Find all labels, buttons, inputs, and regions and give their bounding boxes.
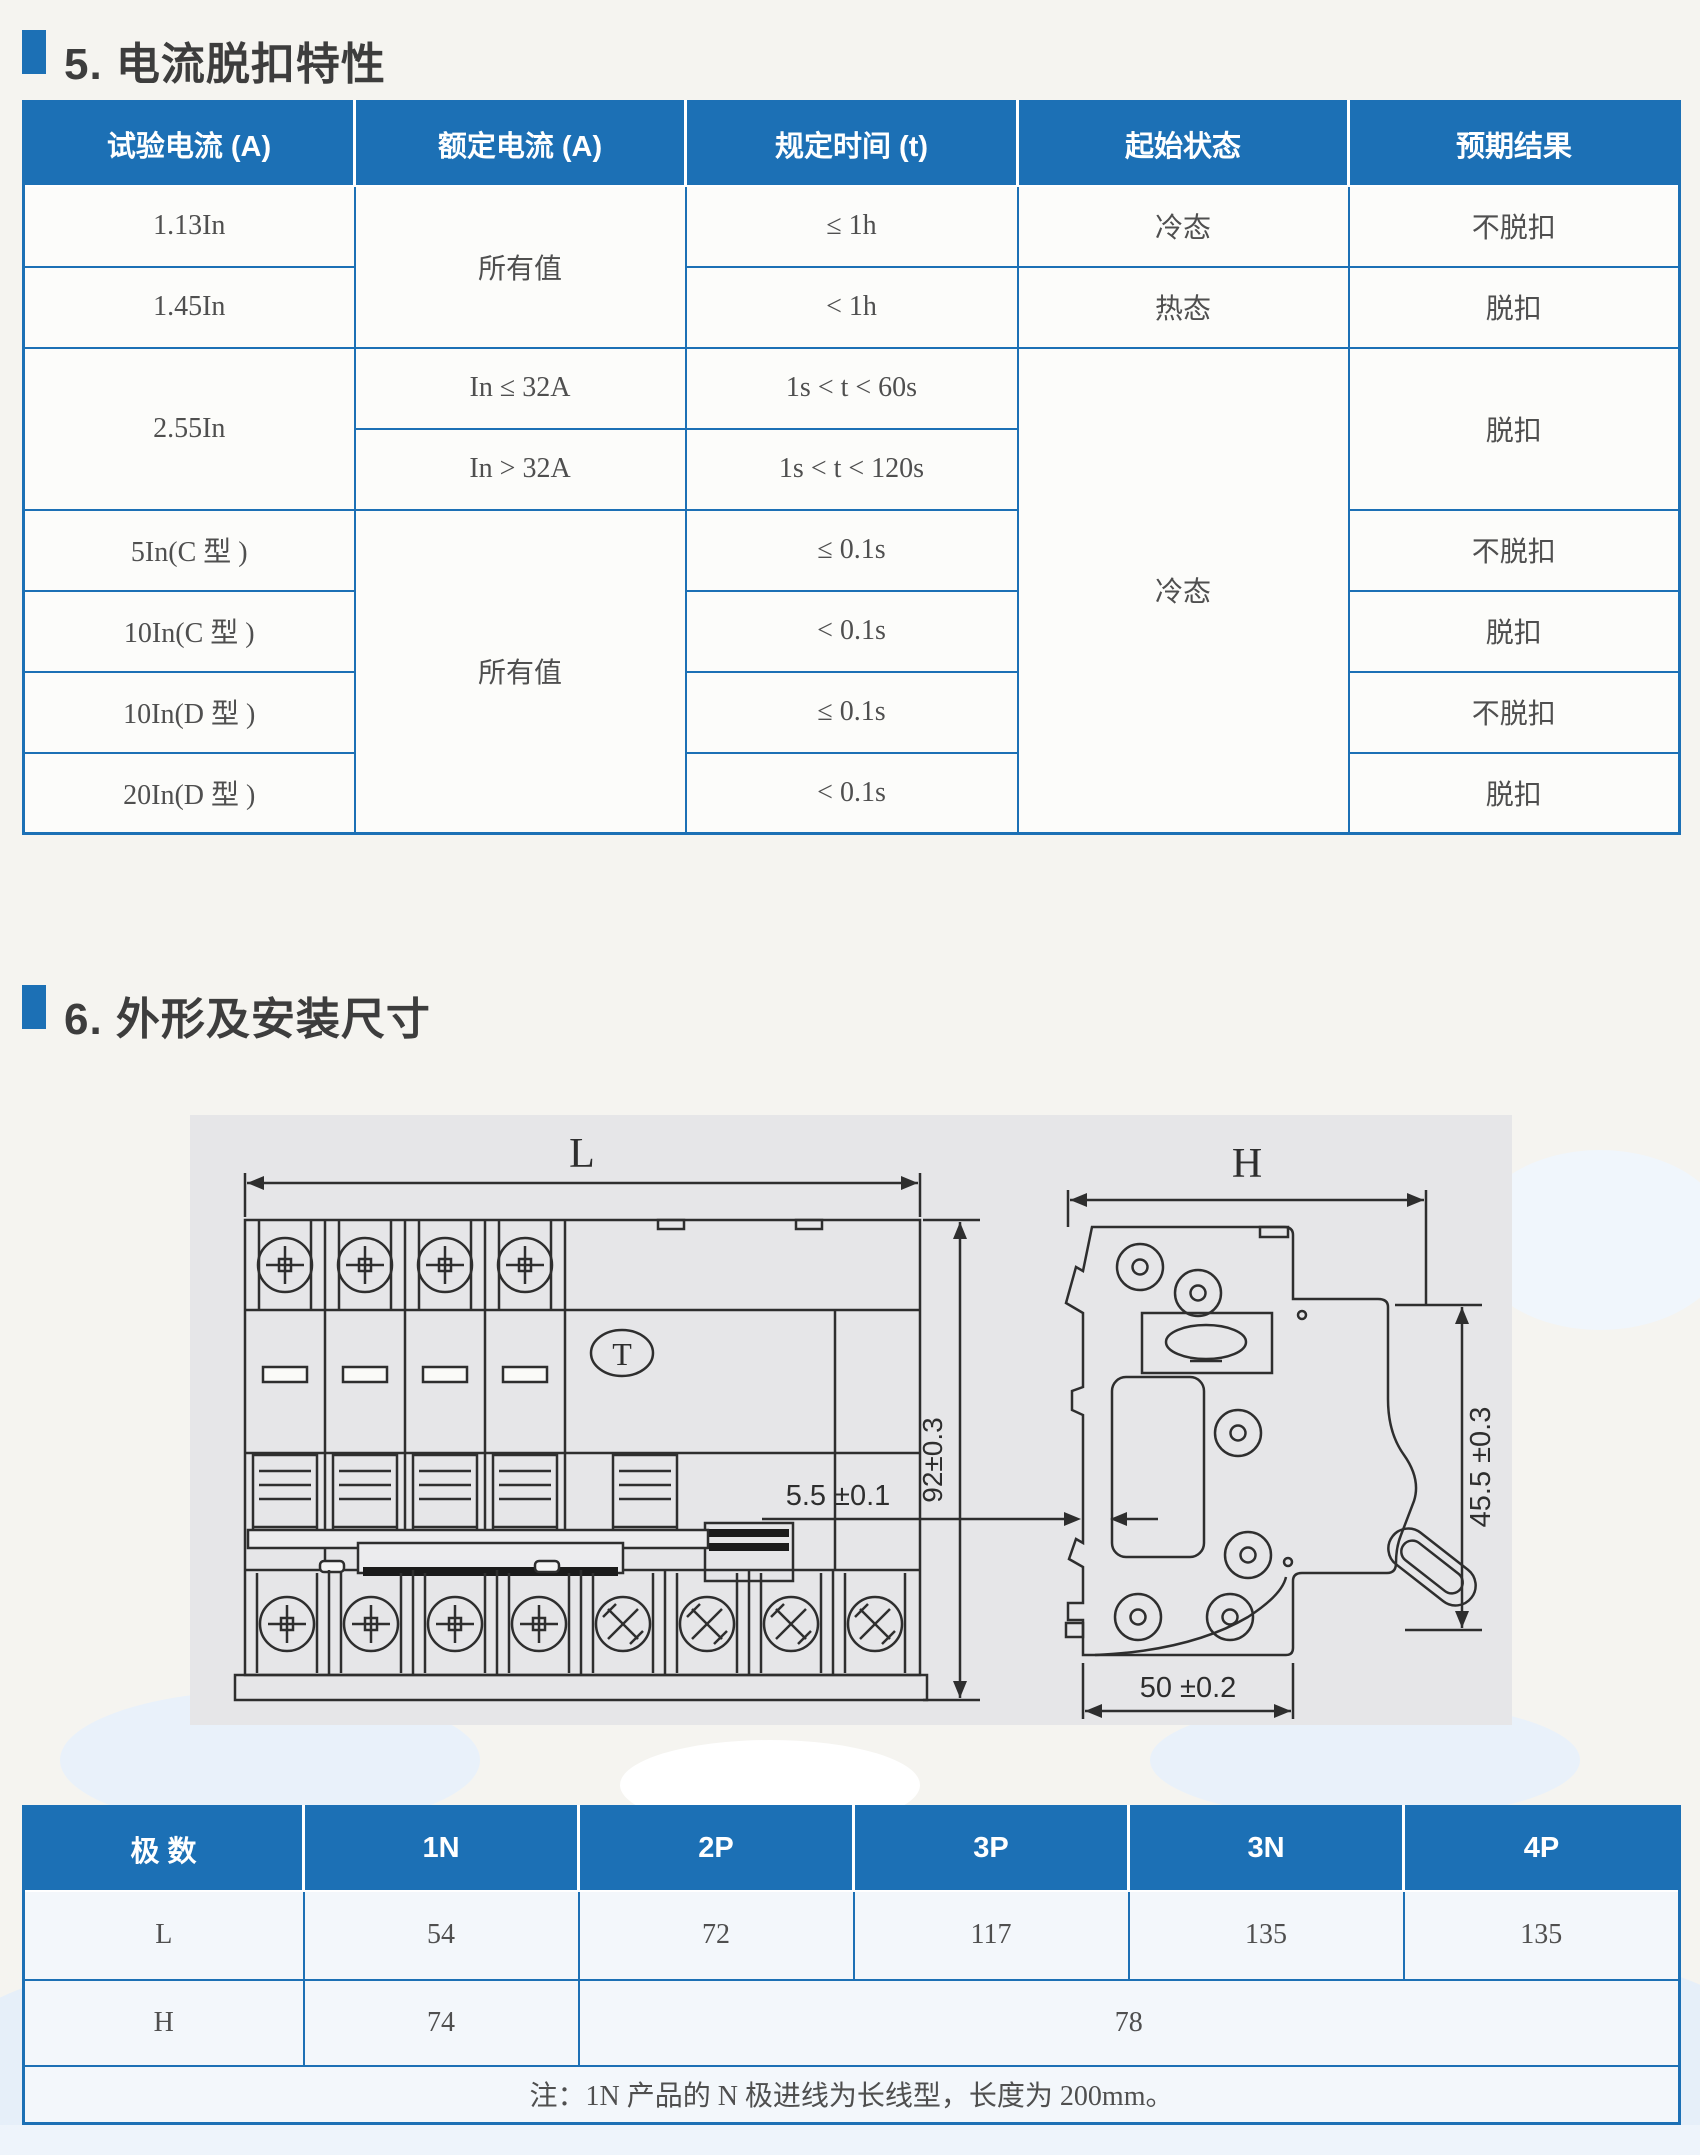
cell-state: 冷态 (1018, 186, 1349, 267)
section6-title: 6. 外形及安装尺寸 (64, 983, 431, 1047)
cell-L-2p: 72 (579, 1891, 854, 1980)
cell-result: 不脱扣 (1349, 510, 1680, 591)
col-header-4p: 4P (1404, 1807, 1680, 1891)
dimensions-table: 极 数 1N 2P 3P 3N 4P L 54 72 117 135 135 H… (22, 1805, 1681, 2125)
col-header-initial-state: 起始状态 (1018, 102, 1349, 186)
cell-state: 热态 (1018, 267, 1349, 348)
cell-time: 1s < t < 120s (686, 429, 1018, 510)
watermark-blob (0, 2125, 1700, 2155)
test-button-icon: T (591, 1330, 653, 1376)
cell-rated-current: In ≤ 32A (355, 348, 686, 429)
cell-test-current: 5In(C 型 ) (24, 510, 355, 591)
cell-H-merged: 78 (579, 1980, 1680, 2066)
table-note: 注：1N 产品的 N 极进线为长线型，长度为 200mm。 (24, 2066, 1680, 2124)
dim-label-H: H (1232, 1141, 1262, 1187)
cell-result: 脱扣 (1349, 753, 1680, 834)
cell-L-3p: 117 (854, 1891, 1129, 1980)
front-view: T (235, 1173, 980, 1700)
section5-bullet-icon (22, 30, 46, 74)
row-label-L: L (24, 1891, 304, 1980)
cell-L-1n: 54 (304, 1891, 579, 1980)
col-header-2p: 2P (579, 1807, 854, 1891)
test-button-label: T (612, 1336, 632, 1372)
dim-label-front: 45.5 ±0.3 (1465, 1407, 1497, 1528)
dimension-drawing-panel: T (190, 1115, 1512, 1725)
cell-time: < 0.1s (686, 753, 1018, 834)
side-view (762, 1190, 1484, 1719)
cell-result: 脱扣 (1349, 591, 1680, 672)
cell-time: ≤ 0.1s (686, 672, 1018, 753)
cell-time: < 1h (686, 267, 1018, 348)
cell-test-current: 1.13In (24, 186, 355, 267)
datasheet-page: 5. 电流脱扣特性 试验电流 (A) 额定电流 (A) 规定时间 (t) 起始状… (0, 0, 1700, 2155)
dim-label-slot: 5.5 ±0.1 (786, 1480, 891, 1512)
cell-H-1n: 74 (304, 1980, 579, 2066)
col-header-3p: 3P (854, 1807, 1129, 1891)
cell-test-current: 1.45In (24, 267, 355, 348)
row-label-H: H (24, 1980, 304, 2066)
dim-label-L: L (569, 1131, 595, 1177)
cell-test-current: 20In(D 型 ) (24, 753, 355, 834)
col-header-expected-result: 预期结果 (1349, 102, 1680, 186)
col-header-test-current: 试验电流 (A) (24, 102, 355, 186)
cell-test-current: 2.55In (24, 348, 355, 510)
col-header-1n: 1N (304, 1807, 579, 1891)
cell-rated-current: 所有值 (355, 186, 686, 348)
cell-time: ≤ 0.1s (686, 510, 1018, 591)
dimension-drawing: T (190, 1115, 1512, 1725)
cell-result: 脱扣 (1349, 267, 1680, 348)
cell-L-4p: 135 (1404, 1891, 1680, 1980)
col-header-3n: 3N (1129, 1807, 1404, 1891)
cell-state: 冷态 (1018, 348, 1349, 834)
section6-bullet-icon (22, 985, 46, 1029)
cell-result: 脱扣 (1349, 348, 1680, 510)
section5-title: 5. 电流脱扣特性 (64, 28, 386, 92)
rivet-icon (1115, 1244, 1271, 1640)
cell-L-3n: 135 (1129, 1891, 1404, 1980)
dim-label-height: 92±0.3 (917, 1417, 948, 1502)
cell-test-current: 10In(D 型 ) (24, 672, 355, 753)
col-header-specified-time: 规定时间 (t) (686, 102, 1018, 186)
cell-rated-current: 所有值 (355, 510, 686, 834)
cell-rated-current: In > 32A (355, 429, 686, 510)
cell-result: 不脱扣 (1349, 672, 1680, 753)
cell-time: ≤ 1h (686, 186, 1018, 267)
col-header-rated-current: 额定电流 (A) (355, 102, 686, 186)
cell-test-current: 10In(C 型 ) (24, 591, 355, 672)
cell-result: 不脱扣 (1349, 186, 1680, 267)
dim-label-depth: 50 ±0.2 (1140, 1672, 1237, 1704)
cell-time: 1s < t < 60s (686, 348, 1018, 429)
cell-time: < 0.1s (686, 591, 1018, 672)
trip-characteristics-table: 试验电流 (A) 额定电流 (A) 规定时间 (t) 起始状态 预期结果 1.1… (22, 100, 1681, 835)
col-header-poles: 极 数 (24, 1807, 304, 1891)
